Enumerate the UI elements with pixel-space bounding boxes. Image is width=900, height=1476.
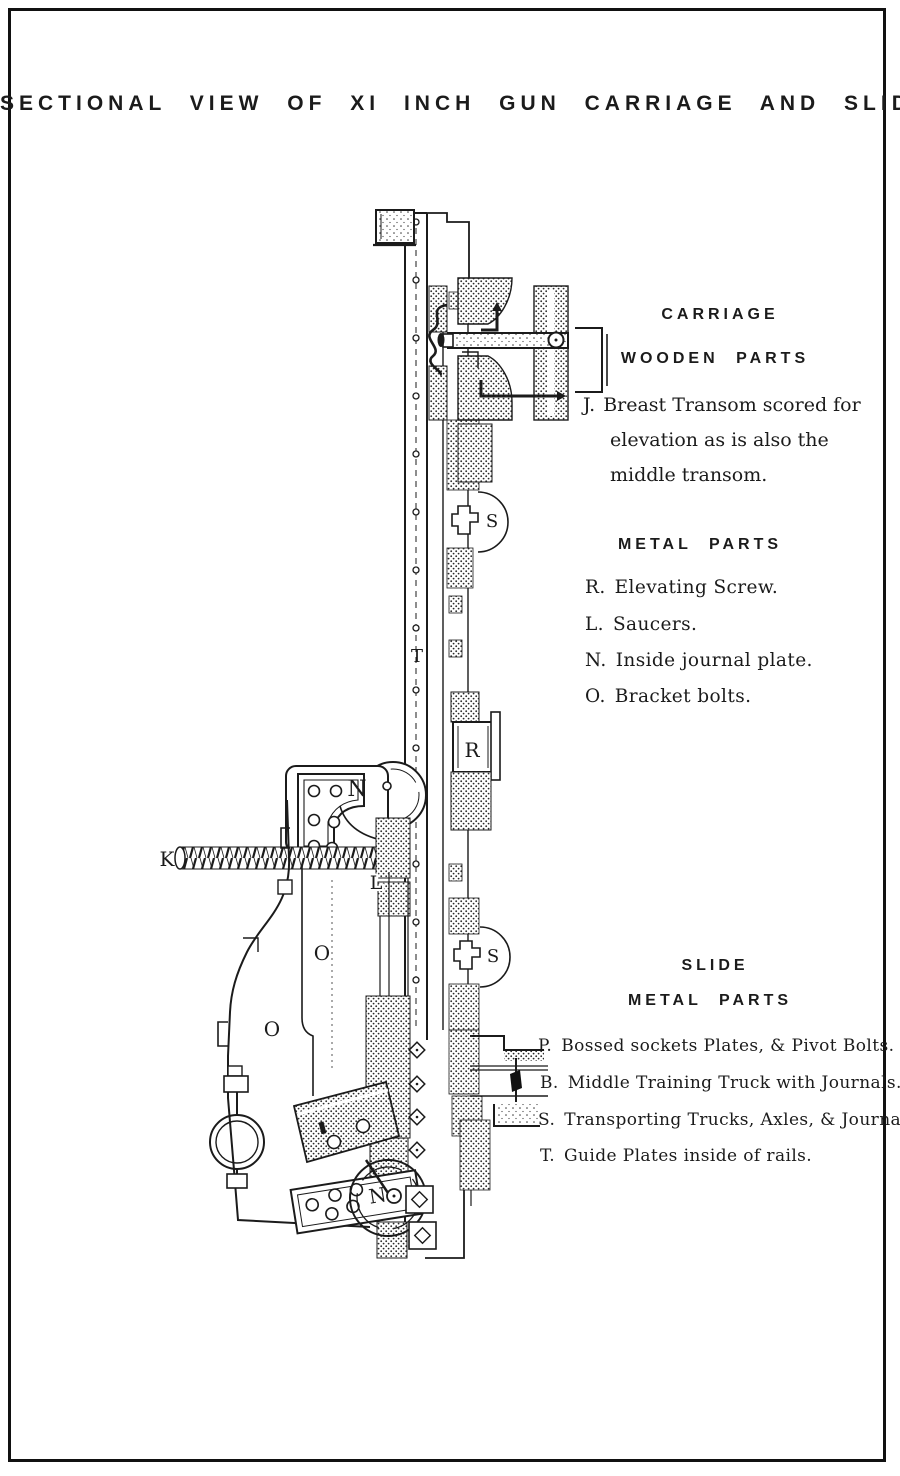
label-l: L xyxy=(370,872,383,894)
legend-item-l: L.Saucers. xyxy=(585,614,697,635)
item-text: Breast Transom scored for xyxy=(603,394,861,416)
training-wheel xyxy=(210,1066,264,1188)
legend-item-n: N.Inside journal plate. xyxy=(585,650,813,671)
legend-item-o: O.Bracket bolts. xyxy=(585,686,751,707)
item-key: J. xyxy=(583,394,595,416)
legend-item-j: J.Breast Transom scored for elevation as… xyxy=(583,388,893,493)
slide-metal-heading: METAL PARTS xyxy=(560,992,860,1010)
item-text: elevation as is also the xyxy=(583,423,893,458)
label-o-lower: O xyxy=(264,1017,280,1041)
label-r: R xyxy=(464,738,480,762)
legend-item-s: S.Transporting Trucks, Axles, & Journals… xyxy=(538,1110,900,1130)
legend-item-r: R.Elevating Screw. xyxy=(585,577,778,598)
label-s-upper: S xyxy=(486,511,498,532)
carriage-metal-heading: METAL PARTS xyxy=(550,536,850,554)
label-s-lower: S xyxy=(487,946,499,967)
legend-item-t: T.Guide Plates inside of rails. xyxy=(540,1146,812,1166)
label-o-upper: O xyxy=(314,941,330,965)
top-end-block xyxy=(373,210,416,245)
transporting-truck-lower xyxy=(454,927,510,987)
legend-item-p: P.Bossed sockets Plates, & Pivot Bolts. xyxy=(538,1036,894,1056)
legend-item-b: B.Middle Training Truck with Journals. xyxy=(540,1073,900,1093)
item-text: middle transom. xyxy=(583,458,893,493)
transporting-truck-upper xyxy=(452,492,508,552)
label-k: K xyxy=(160,847,176,871)
label-t: T xyxy=(411,646,423,667)
carriage-wooden-heading: WOODEN PARTS xyxy=(565,350,865,368)
slide-heading: SLIDE xyxy=(565,957,865,975)
elevating-screw xyxy=(175,847,376,869)
gun-carriage-sectional-diagram: N K S T R N xyxy=(0,0,900,1476)
carriage-heading: CARRIAGE xyxy=(570,306,870,324)
label-n-upper: N xyxy=(347,777,366,802)
